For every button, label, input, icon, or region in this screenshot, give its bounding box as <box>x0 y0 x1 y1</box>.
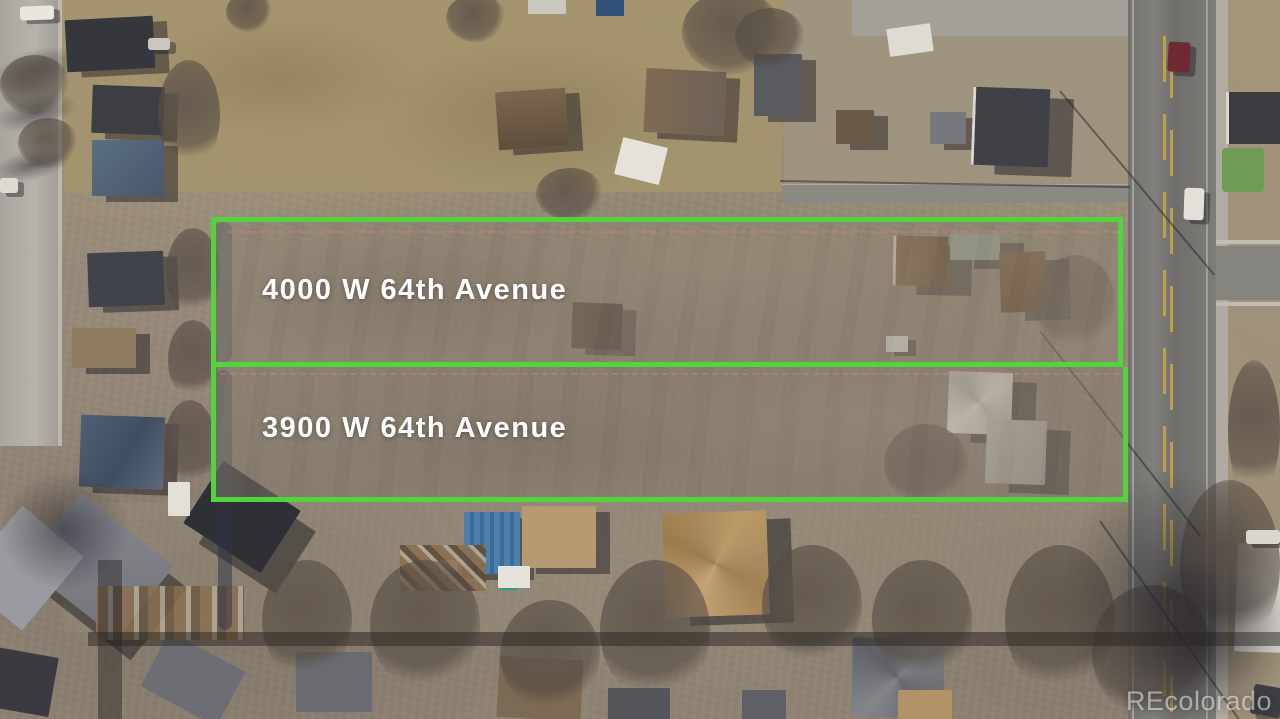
alley-shadow <box>98 560 122 719</box>
tree <box>0 55 70 115</box>
parcel-boundary-3900: 3900 W 64th Avenue <box>211 367 1128 502</box>
tree <box>158 60 220 170</box>
tree <box>735 8 805 68</box>
tree <box>370 560 480 690</box>
tree <box>1228 360 1280 500</box>
shed-roof <box>836 110 874 144</box>
tree <box>536 168 604 220</box>
tree <box>762 545 862 665</box>
side-street-stub <box>1216 246 1280 300</box>
tree <box>600 560 710 700</box>
house-roof <box>91 85 165 135</box>
house-roof <box>1226 92 1280 144</box>
parcel-label-3900: 3900 W 64th Avenue <box>262 410 567 446</box>
side-street-curb <box>1216 240 1280 244</box>
car <box>0 178 18 193</box>
tree <box>164 400 216 490</box>
ditch-strip <box>218 505 232 630</box>
car <box>148 38 170 50</box>
tree <box>500 600 600 710</box>
lawn-patch <box>1222 148 1264 192</box>
house-roof <box>72 328 136 368</box>
tree <box>872 560 972 680</box>
rv-camper <box>498 566 530 588</box>
house-roof <box>87 251 165 308</box>
car <box>20 5 54 20</box>
car <box>1246 530 1280 544</box>
watermark: REcolorado <box>1126 686 1272 717</box>
building-roof <box>522 506 596 568</box>
tree <box>262 560 352 680</box>
shed-roof <box>930 112 966 144</box>
house-roof <box>92 140 164 196</box>
truck <box>1167 41 1191 72</box>
house-roof <box>971 87 1051 168</box>
house-roof <box>65 16 156 73</box>
house-roof <box>898 690 952 719</box>
house-roof <box>0 647 59 717</box>
aerial-photo: 4000 W 64th Avenue 3900 W 64th Avenue RE… <box>0 0 1280 719</box>
house-roof <box>643 68 726 136</box>
van <box>1183 188 1204 221</box>
fence-line-shadow <box>88 632 1280 646</box>
tree <box>18 118 78 168</box>
parcel-boundary-4000: 4000 W 64th Avenue <box>211 217 1123 367</box>
side-street-curb <box>1216 302 1280 306</box>
house-roof <box>495 88 569 151</box>
trailer <box>528 0 566 14</box>
house-roof <box>742 690 786 719</box>
parcel-label-4000: 4000 W 64th Avenue <box>262 272 567 308</box>
shed-roof <box>596 0 624 16</box>
